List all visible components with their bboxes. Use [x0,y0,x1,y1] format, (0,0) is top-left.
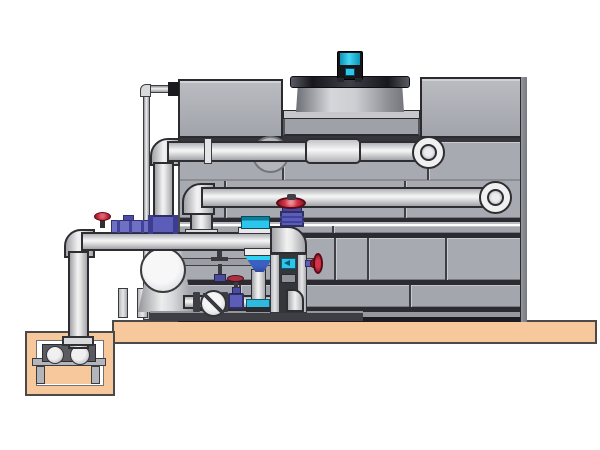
tower-seam [334,238,337,280]
fan-motor-cyan-housing [340,53,360,65]
upper-pipe-right-elbow-bore [420,144,437,161]
red-valve-rib [280,221,304,223]
tower-top-box-right [420,77,527,138]
second-pipe [201,187,488,208]
red-valve-body [280,211,304,227]
header-fitting-rib [141,220,144,233]
frame-gray-insert [281,274,296,283]
red-valve-hub [287,194,296,200]
frame-column-left [270,254,280,313]
mini-valve-red-handwheel [94,212,111,221]
downcomer-valve-flange [173,215,178,234]
thin-pipe-wall-flange [168,82,179,96]
fan-motor-foot-right [355,78,362,82]
insert-arrow-icon [284,260,290,266]
fan-motor-foot-left [337,78,344,82]
header-fitting-rib [129,220,132,233]
header-fitting-nub [123,215,134,221]
tower-right-side-face [520,77,527,322]
tower-seam [445,238,448,280]
prv-drop-base-dark [246,307,270,312]
sump-pit-floor [44,366,96,384]
frame-bottom-elbow [286,289,304,312]
gate-valve-bonnet [232,287,241,294]
gate-valve-handwheel [227,275,244,282]
check-valve-disc-mark [203,293,224,314]
rail-tap-body [214,274,226,282]
tower-top-box-left [178,79,283,138]
red-valve-rib [280,216,304,218]
header-fitting-rib [117,220,120,233]
rail-tap-cross-v [217,251,222,259]
sump-stand-leg-left [36,366,45,384]
sump-stand-leg-right [91,366,100,384]
upper-pipe-sleeve [305,138,361,164]
float-device-cyan-box [241,216,270,229]
tower-panel-subline [178,179,527,181]
skid-leg-a [118,288,128,318]
fan-shroud-body [296,88,404,112]
suction-riser-flange [62,336,94,346]
fan-motor-cyan-window [345,68,355,76]
tower-band [178,218,527,224]
manifold-flange [193,292,200,312]
second-pipe-right-elbow-bore [487,189,504,206]
downcomer-valve-flange [148,215,153,234]
skid-base-rail [150,311,363,321]
tower-seam [332,226,335,233]
thin-drain-pipe-elbow [140,84,151,97]
tower-seam [409,285,412,307]
equipment-slab [112,320,597,344]
fan-deck-recess [283,119,420,136]
manifold-gate-valve [228,293,244,309]
upper-pipe-coupling-ring [204,138,212,164]
suction-riser-pipe [68,251,89,349]
prv-drop-pipe [251,269,266,302]
upper-pipe-downcomer [153,162,174,218]
pump-vessel-face [140,247,186,293]
tower-seam [367,238,370,280]
side-valve-red-handwheel [313,253,323,274]
cooling-tower-system-diagram [0,0,600,450]
sump-pump-eye-left [46,346,64,364]
